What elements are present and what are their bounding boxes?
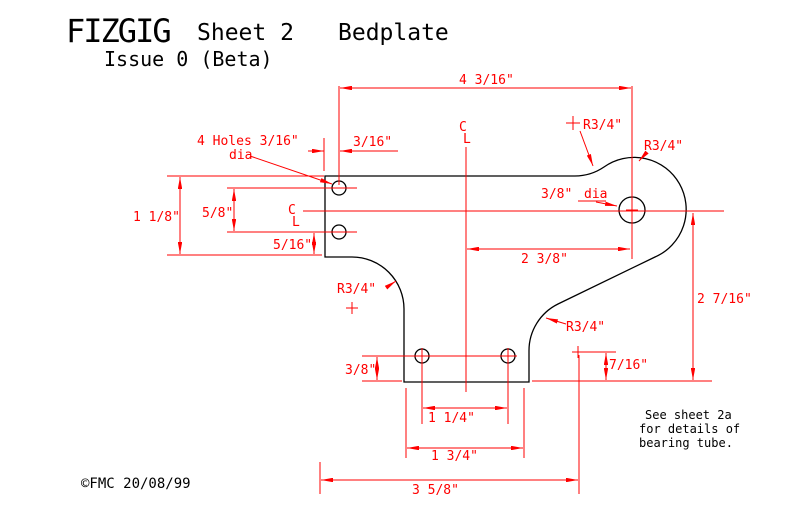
dim-overall-width-top-label: 4 3/16": [459, 73, 514, 88]
radius-right-fillet-label: R3/4": [566, 320, 605, 335]
leader-line: [596, 202, 617, 206]
holes-note-label: 4 Holes 3/16": [197, 134, 299, 149]
dim-hole-pitch: 5/8": [202, 188, 357, 232]
radius-lobe-label: R3/4": [644, 139, 683, 154]
radius-right-fillet: R3/4": [546, 318, 605, 335]
bearing-dia-word-label: dia: [584, 187, 607, 202]
dim-base-hole-pitch-label: 1 1/4": [428, 411, 475, 426]
note-line-1: See sheet 2a: [645, 408, 732, 422]
centerline-symbol-left-l: L: [292, 215, 300, 230]
leader-line: [580, 131, 593, 166]
dim-flange-height-label: 1 1/8": [133, 210, 180, 225]
dim-base-width-label: 1 3/4": [431, 449, 478, 464]
bearing-dia-label: 3/8": [541, 187, 572, 202]
dim-base-width: 1 3/4": [406, 388, 524, 464]
radius-top-fillet: R3/4": [566, 116, 622, 166]
dim-centre-to-bearing-label: 2 3/8": [521, 252, 568, 267]
leader-line: [387, 281, 396, 287]
dim-hole-inset: 3/16": [308, 135, 398, 171]
dim-centre-to-base-label: 2 7/16": [697, 292, 752, 307]
bearing-dia-note: 3/8" dia: [541, 187, 638, 216]
dim-centre-to-bearing: 2 3/8": [467, 249, 630, 267]
radius-left-fillet: R3/4": [337, 281, 396, 314]
dim-centre-to-base: 2 7/16": [532, 213, 752, 381]
dim-hole-to-flange-bottom: 5/16": [273, 233, 314, 254]
title-sheet: Sheet 2: [197, 20, 294, 46]
copyright-text: ©FMC 20/08/99: [81, 476, 191, 492]
dim-hole-to-flange-bottom-label: 5/16": [273, 238, 312, 253]
dim-hole-pitch-label: 5/8": [202, 206, 233, 221]
centerline-symbol-top-l: L: [463, 132, 471, 147]
holes-note-dia-label: dia: [229, 148, 252, 163]
title-component: Bedplate: [338, 20, 449, 46]
note-line-2: for details of: [639, 422, 740, 436]
dim-overall-width-top: 4 3/16": [339, 73, 632, 259]
drawing-sheet: FIZGIG Sheet 2 Bedplate Issue 0 (Beta) ©…: [0, 0, 812, 517]
cad-drawing: FIZGIG Sheet 2 Bedplate Issue 0 (Beta) ©…: [0, 0, 812, 517]
dim-base-hole-height: 3/8": [345, 356, 517, 381]
radius-lobe: R3/4": [639, 139, 683, 161]
title-product: FIZGIG: [66, 12, 170, 50]
dim-base-hole-pitch: 1 1/4": [422, 348, 508, 426]
leader-line: [546, 318, 566, 324]
title-issue: Issue 0 (Beta): [104, 47, 273, 71]
dim-overall-width-bottom-label: 3 5/8": [412, 483, 459, 498]
dim-fillet-centre-height: 7/16": [572, 346, 648, 380]
leader-line: [250, 156, 332, 184]
dim-fillet-centre-height-label: 7/16": [609, 358, 648, 373]
dim-hole-inset-label: 3/16": [353, 135, 392, 150]
radius-left-fillet-label: R3/4": [337, 282, 376, 297]
note-line-3: bearing tube.: [639, 436, 733, 450]
radius-top-fillet-label: R3/4": [583, 118, 622, 133]
dim-base-hole-height-label: 3/8": [345, 363, 376, 378]
